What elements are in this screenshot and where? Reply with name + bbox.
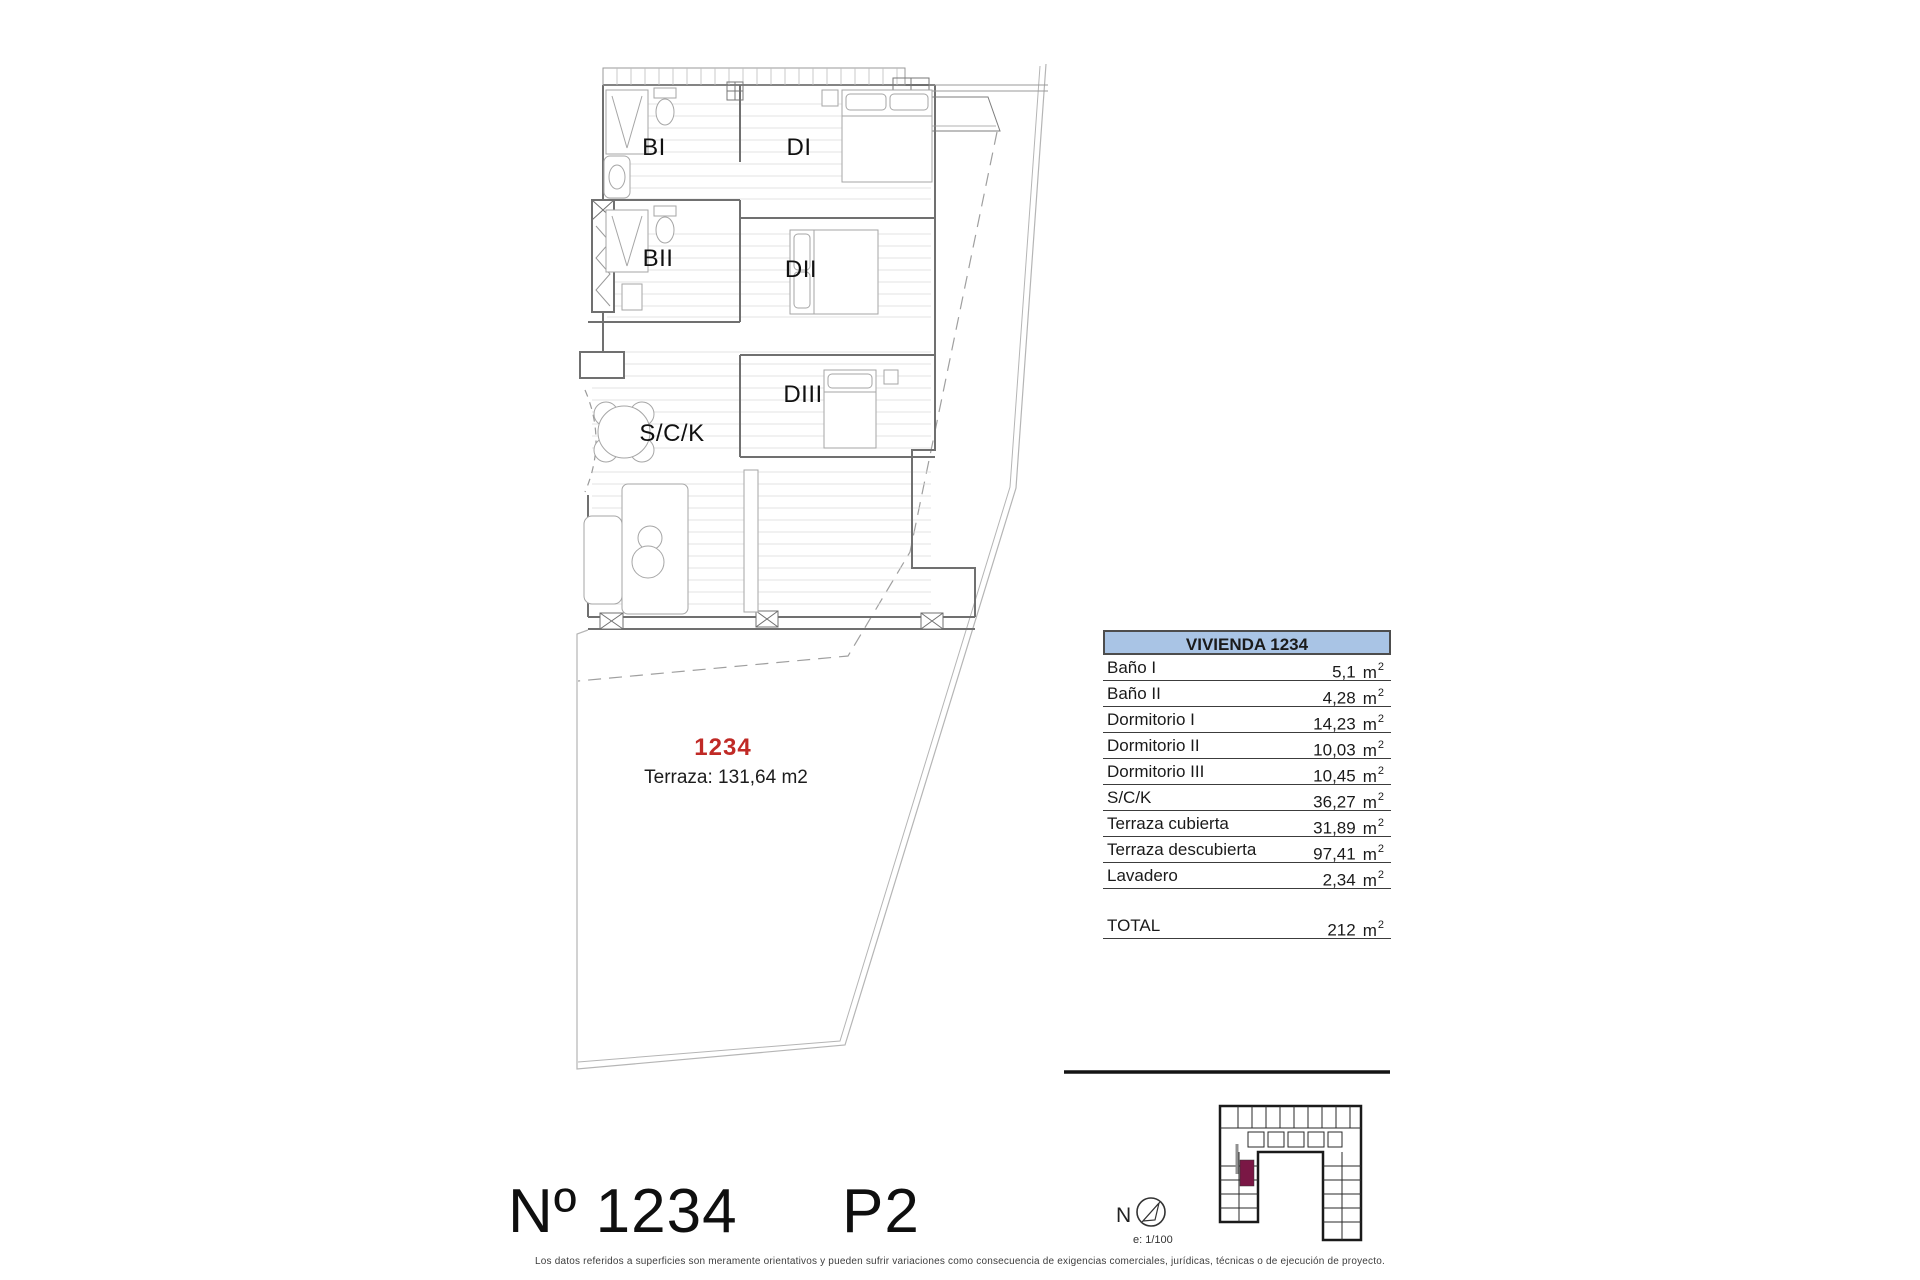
row-value: 97,41m2 bbox=[1313, 837, 1391, 862]
compass-icon bbox=[1137, 1198, 1165, 1226]
row-value: 10,03m2 bbox=[1313, 733, 1391, 758]
disclaimer-text: Los datos referidos a superficies son me… bbox=[0, 1256, 1920, 1267]
row-label: Terraza cubierta bbox=[1103, 811, 1229, 836]
scale-label: e: 1/100 bbox=[1133, 1234, 1173, 1246]
room-label-dii: DII bbox=[785, 256, 817, 284]
sheet-unit-number: Nº 1234 bbox=[508, 1176, 738, 1247]
table-row: Dormitorio I 14,23m2 bbox=[1103, 707, 1391, 733]
room-label-bi: BI bbox=[642, 134, 666, 162]
table-total-row: TOTAL 212m2 bbox=[1103, 913, 1391, 939]
room-label-diii: DIII bbox=[783, 381, 822, 409]
row-value: 2,34m2 bbox=[1323, 863, 1391, 888]
row-label: Dormitorio I bbox=[1103, 707, 1195, 732]
floor-plan-drawing bbox=[0, 0, 1920, 1280]
unit-number-red: 1234 bbox=[694, 734, 751, 762]
area-table-header: VIVIENDA 1234 bbox=[1103, 630, 1391, 655]
floor-plan-sheet: BI DI BII DII DIII S/C/K 1234 Terraza: 1… bbox=[0, 0, 1920, 1280]
row-value: 31,89m2 bbox=[1313, 811, 1391, 836]
row-label: Dormitorio III bbox=[1103, 759, 1204, 784]
total-value: 212m2 bbox=[1327, 913, 1391, 938]
row-label: Dormitorio II bbox=[1103, 733, 1200, 758]
row-value: 10,45m2 bbox=[1313, 759, 1391, 784]
area-table: VIVIENDA 1234 Baño I 5,1m2 Baño II 4,28m… bbox=[1103, 630, 1391, 939]
room-label-bii: BII bbox=[643, 245, 674, 273]
highlighted-unit bbox=[1240, 1160, 1254, 1186]
room-label-di: DI bbox=[787, 134, 812, 162]
row-label: Terraza descubierta bbox=[1103, 837, 1256, 862]
compass-north-label: N bbox=[1116, 1204, 1131, 1228]
table-row: S/C/K 36,27m2 bbox=[1103, 785, 1391, 811]
table-row: Terraza cubierta 31,89m2 bbox=[1103, 811, 1391, 837]
row-label: Baño I bbox=[1103, 655, 1156, 680]
row-label: Baño II bbox=[1103, 681, 1161, 706]
table-row: Baño I 5,1m2 bbox=[1103, 655, 1391, 681]
table-spacer-row bbox=[1103, 889, 1391, 913]
room-label-sck: S/C/K bbox=[639, 420, 704, 448]
terrace-area-note: Terraza: 131,64 m2 bbox=[644, 767, 808, 789]
table-row: Dormitorio III 10,45m2 bbox=[1103, 759, 1391, 785]
site-minimap bbox=[1220, 1106, 1361, 1240]
row-label: Lavadero bbox=[1103, 863, 1178, 888]
row-value: 14,23m2 bbox=[1313, 707, 1391, 732]
total-label: TOTAL bbox=[1103, 913, 1160, 938]
row-value: 4,28m2 bbox=[1323, 681, 1391, 706]
furniture bbox=[584, 88, 932, 614]
row-label: S/C/K bbox=[1103, 785, 1151, 810]
table-row: Dormitorio II 10,03m2 bbox=[1103, 733, 1391, 759]
sheet-floor-number: P2 bbox=[842, 1176, 920, 1247]
table-row: Lavadero 2,34m2 bbox=[1103, 863, 1391, 889]
table-row: Baño II 4,28m2 bbox=[1103, 681, 1391, 707]
row-value: 36,27m2 bbox=[1313, 785, 1391, 810]
row-value: 5,1m2 bbox=[1332, 655, 1391, 680]
table-row: Terraza descubierta 97,41m2 bbox=[1103, 837, 1391, 863]
